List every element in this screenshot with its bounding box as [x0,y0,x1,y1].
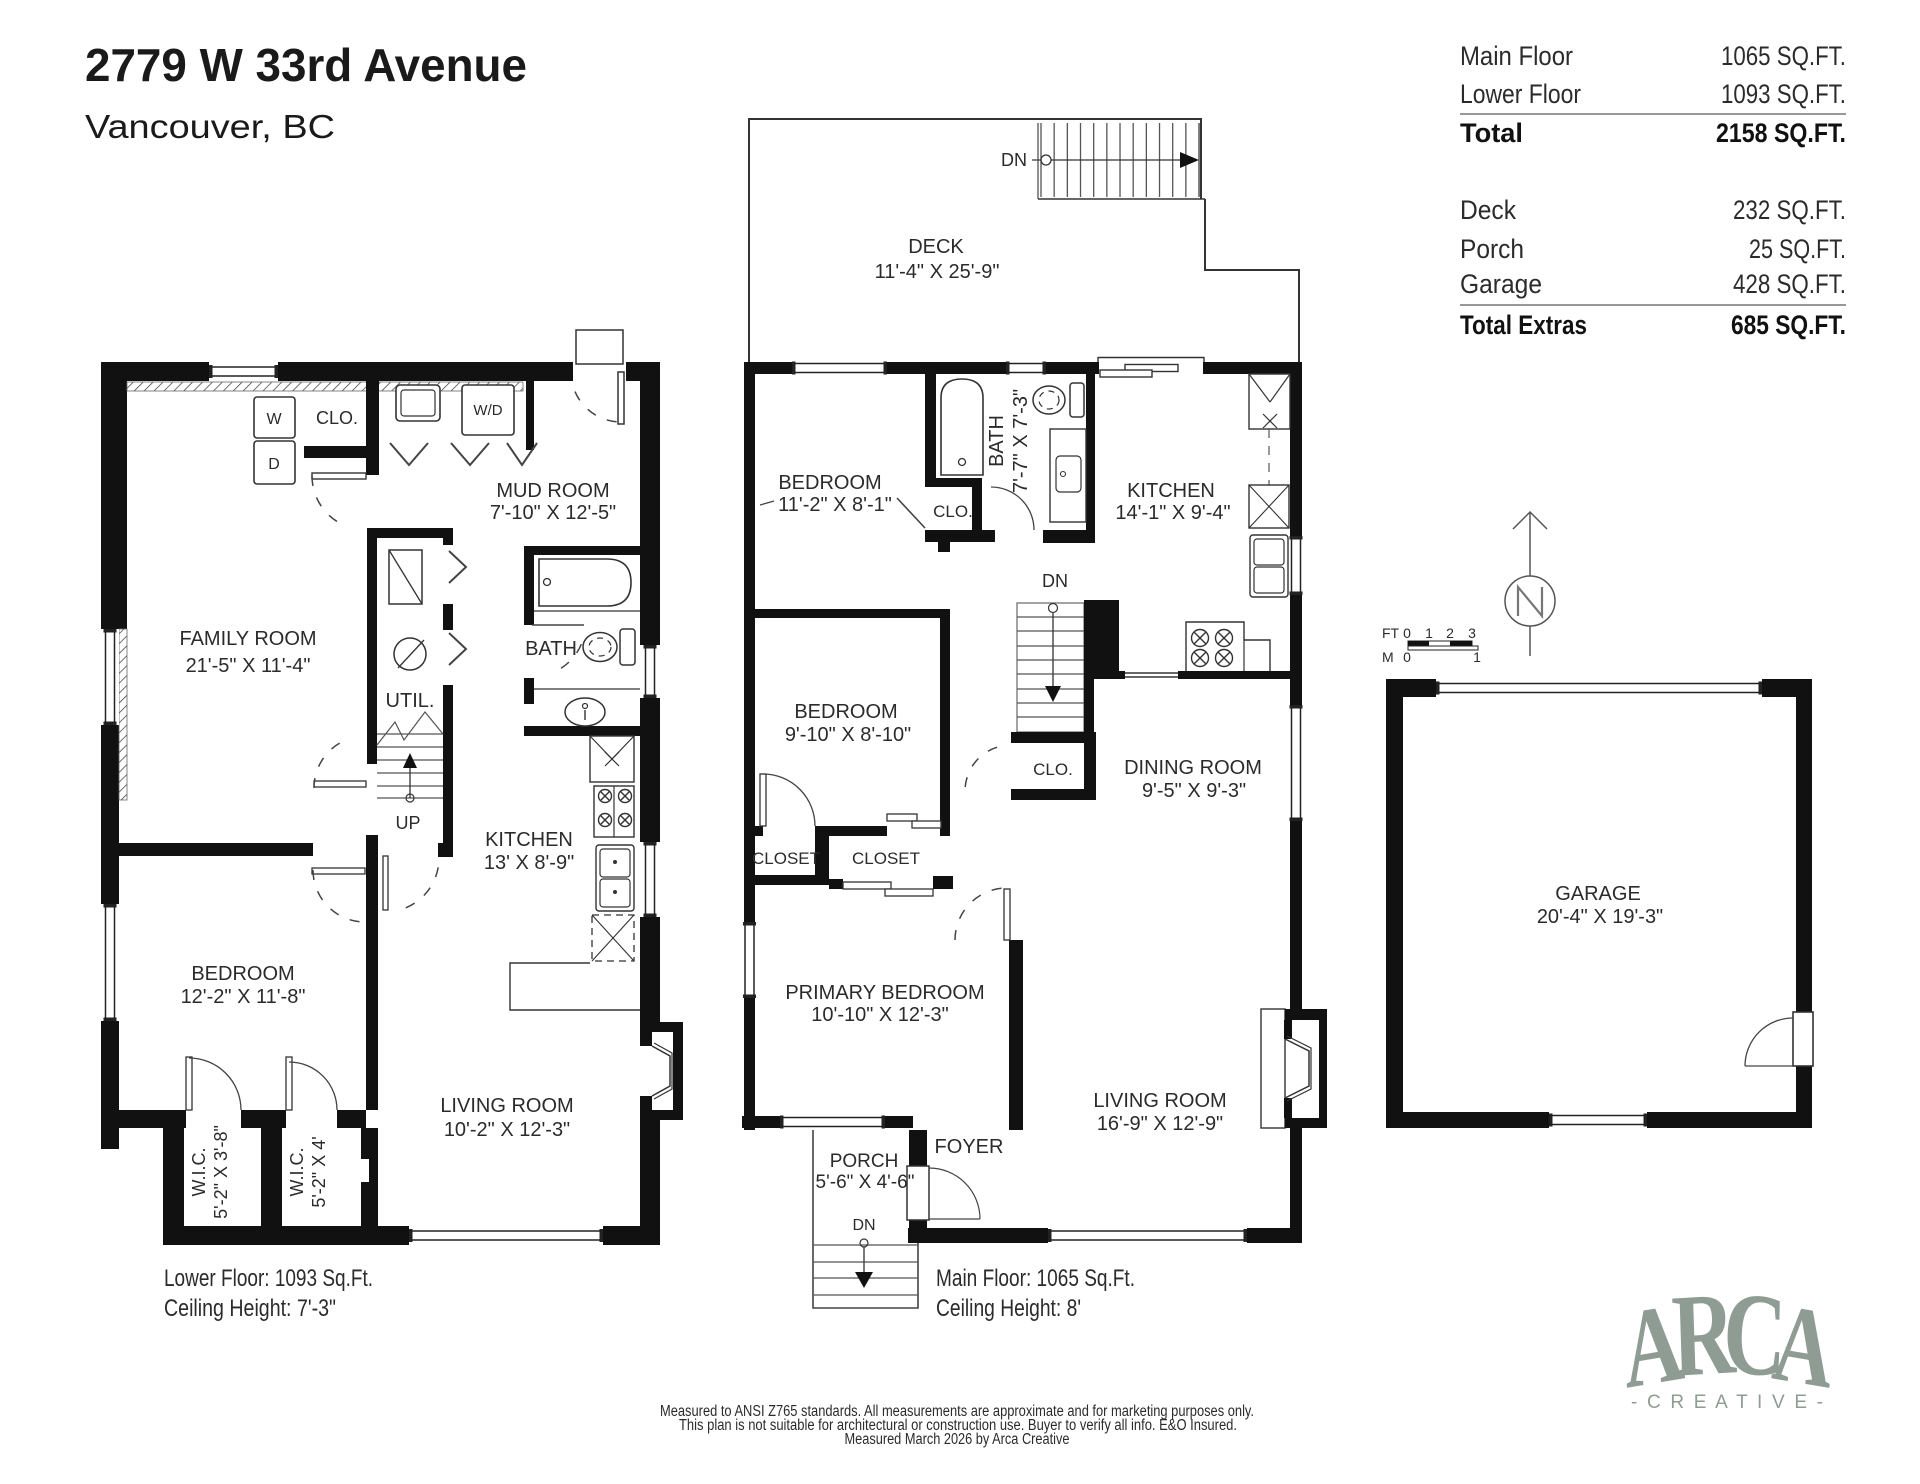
svg-text:5'-2" X 3'-8": 5'-2" X 3'-8" [211,1125,231,1219]
svg-text:5'-2" X 4': 5'-2" X 4' [309,1136,329,1207]
svg-text:3: 3 [1468,625,1476,641]
svg-text:BATH: BATH [986,415,1008,467]
svg-text:Ceiling Height: 7'-3": Ceiling Height: 7'-3" [164,1295,336,1322]
svg-text:1093 SQ.FT.: 1093 SQ.FT. [1721,79,1846,109]
svg-text:25 SQ.FT.: 25 SQ.FT. [1749,234,1846,264]
svg-text:DECK: DECK [908,236,964,258]
svg-text:12'-2" X 11'-8": 12'-2" X 11'-8" [181,986,306,1008]
svg-text:0: 0 [1403,625,1411,641]
svg-text:9'-5" X 9'-3": 9'-5" X 9'-3" [1142,780,1246,802]
svg-text:11'-2" X 8'-1": 11'-2" X 8'-1" [778,494,892,516]
svg-text:Main Floor: 1065 Sq.Ft.: Main Floor: 1065 Sq.Ft. [936,1265,1135,1292]
svg-text:PRIMARY BEDROOM: PRIMARY BEDROOM [785,982,984,1004]
svg-text:Ceiling Height: 8': Ceiling Height: 8' [936,1295,1081,1322]
svg-text:UTIL.: UTIL. [386,690,435,712]
svg-text:KITCHEN: KITCHEN [485,829,573,851]
svg-text:9'-10" X 8'-10": 9'-10" X 8'-10" [785,724,911,746]
svg-text:2779 W 33rd Avenue: 2779 W 33rd Avenue [85,39,527,91]
svg-text:D: D [268,456,280,473]
svg-text:Measured March 2026 by Arca Cr: Measured March 2026 by Arca Creative [845,1431,1070,1448]
svg-text:Garage: Garage [1460,269,1542,299]
svg-text:FT: FT [1382,625,1400,641]
svg-text:BEDROOM: BEDROOM [794,701,897,723]
svg-text:Lower Floor: 1093 Sq.Ft.: Lower Floor: 1093 Sq.Ft. [164,1265,373,1292]
svg-text:LIVING ROOM: LIVING ROOM [440,1095,573,1117]
svg-text:Lower Floor: Lower Floor [1460,79,1581,109]
svg-text:PORCH: PORCH [830,1151,899,1172]
svg-text:DN: DN [852,1217,875,1234]
svg-text:MUD ROOM: MUD ROOM [496,480,609,502]
svg-text:2: 2 [1446,625,1454,641]
svg-text:13' X 8'-9": 13' X 8'-9" [484,852,574,874]
svg-text:UP: UP [395,813,420,833]
svg-text:CLO.: CLO. [933,502,973,521]
svg-text:CLOSET: CLOSET [852,849,920,868]
svg-text:Total Extras: Total Extras [1460,310,1587,340]
svg-text:BEDROOM: BEDROOM [778,472,881,494]
svg-text:10'-10" X 12'-3": 10'-10" X 12'-3" [811,1004,948,1026]
svg-text:2158 SQ.FT.: 2158 SQ.FT. [1716,118,1846,148]
svg-text:428 SQ.FT.: 428 SQ.FT. [1733,269,1846,299]
svg-text:20'-4" X 19'-3": 20'-4" X 19'-3" [1537,906,1663,928]
svg-text:CLO.: CLO. [1033,760,1073,779]
svg-text:7'-7" X 7'-3": 7'-7" X 7'-3" [1010,389,1032,493]
svg-text:W: W [266,411,282,428]
svg-text:W/D: W/D [473,402,502,419]
svg-text:232 SQ.FT.: 232 SQ.FT. [1733,195,1846,225]
svg-text:21'-5" X 11'-4": 21'-5" X 11'-4" [186,655,311,677]
svg-text:CLOSET: CLOSET [752,849,820,868]
svg-text:14'-1" X 9'-4": 14'-1" X 9'-4" [1115,502,1230,524]
svg-text:Porch: Porch [1460,234,1524,264]
svg-text:10'-2" X 12'-3": 10'-2" X 12'-3" [444,1119,570,1141]
svg-text:FAMILY ROOM: FAMILY ROOM [179,628,316,650]
svg-text:FOYER: FOYER [935,1136,1004,1158]
svg-text:BATH: BATH [525,638,577,660]
svg-text:Vancouver, BC: Vancouver, BC [85,108,335,145]
svg-text:DN: DN [1001,150,1027,170]
svg-text:KITCHEN: KITCHEN [1127,480,1215,502]
svg-text:1065 SQ.FT.: 1065 SQ.FT. [1721,41,1846,71]
svg-text:7'-10" X 12'-5": 7'-10" X 12'-5" [490,502,616,524]
svg-text:16'-9" X 12'-9": 16'-9" X 12'-9" [1097,1113,1223,1135]
svg-text:Main Floor: Main Floor [1460,41,1573,71]
svg-text:GARAGE: GARAGE [1555,883,1641,905]
svg-text:BEDROOM: BEDROOM [191,963,294,985]
svg-text:5'-6" X 4'-6": 5'-6" X 4'-6" [816,1172,915,1193]
svg-text:CLO.: CLO. [316,408,358,428]
svg-text:DINING ROOM: DINING ROOM [1124,757,1262,779]
svg-text:685 SQ.FT.: 685 SQ.FT. [1731,310,1846,340]
svg-text:Deck: Deck [1460,195,1516,225]
svg-text:Total: Total [1460,118,1523,148]
svg-text:DN: DN [1042,571,1068,591]
svg-text:M: M [1382,649,1394,665]
svg-text:1: 1 [1425,625,1433,641]
svg-text:1: 1 [1473,649,1481,665]
svg-text:11'-4" X 25'-9": 11'-4" X 25'-9" [875,261,1000,283]
svg-text:LIVING ROOM: LIVING ROOM [1093,1090,1226,1112]
svg-text:0: 0 [1403,649,1411,665]
svg-text:W.I.C.: W.I.C. [189,1148,209,1197]
svg-text:W.I.C.: W.I.C. [287,1148,307,1197]
